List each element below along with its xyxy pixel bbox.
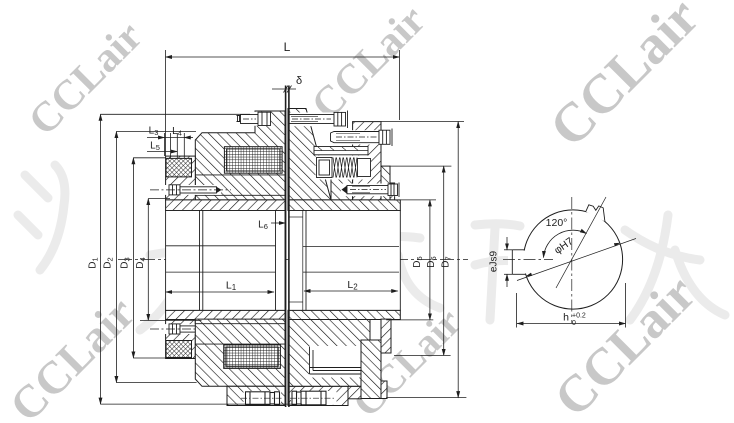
svg-text:+0.2: +0.2 bbox=[572, 313, 586, 320]
svg-text:0: 0 bbox=[572, 320, 576, 327]
svg-text:D2: D2 bbox=[103, 257, 115, 268]
svg-text:L: L bbox=[284, 40, 291, 54]
svg-text:D1: D1 bbox=[88, 257, 100, 268]
svg-text:D3: D3 bbox=[120, 257, 132, 268]
svg-text:L6: L6 bbox=[258, 220, 268, 232]
svg-text:CCLair: CCLair bbox=[0, 287, 144, 423]
svg-text:CCLair: CCLair bbox=[303, 0, 435, 129]
svg-text:h: h bbox=[563, 312, 569, 324]
svg-text:120°: 120° bbox=[546, 217, 568, 229]
svg-text:CCLair: CCLair bbox=[538, 0, 711, 158]
svg-text:D7: D7 bbox=[441, 256, 453, 267]
svg-text:L5: L5 bbox=[150, 141, 160, 153]
svg-text:δ: δ bbox=[296, 75, 302, 87]
svg-text:CCLair: CCLair bbox=[20, 13, 152, 145]
svg-text:D6: D6 bbox=[426, 256, 438, 267]
svg-text:D5: D5 bbox=[412, 256, 424, 267]
svg-text:eJs9: eJs9 bbox=[489, 251, 500, 273]
svg-text:D4: D4 bbox=[135, 257, 147, 268]
